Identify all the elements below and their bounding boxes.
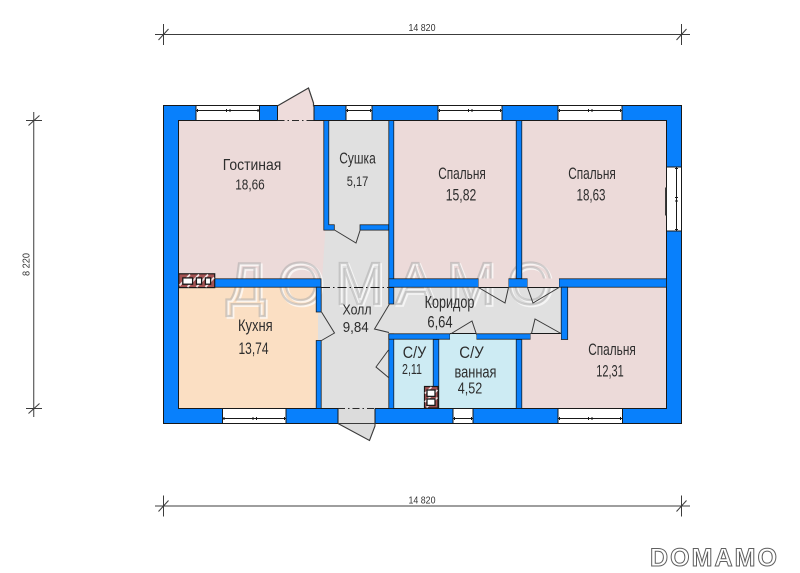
- svg-text:18,63: 18,63: [577, 187, 606, 205]
- svg-text:15,82: 15,82: [446, 187, 477, 205]
- svg-text:С/У: С/У: [403, 344, 427, 362]
- svg-text:4,52: 4,52: [458, 381, 482, 398]
- svg-text:Спальня: Спальня: [568, 164, 616, 183]
- svg-text:5,17: 5,17: [347, 173, 369, 189]
- svg-text:Спальня: Спальня: [588, 340, 636, 359]
- svg-text:Холл: Холл: [343, 302, 372, 319]
- svg-text:Сушка: Сушка: [339, 151, 376, 168]
- svg-text:13,74: 13,74: [239, 340, 269, 358]
- svg-text:Коридор: Коридор: [425, 292, 475, 312]
- svg-text:18,66: 18,66: [235, 178, 265, 194]
- svg-text:12,31: 12,31: [596, 362, 624, 380]
- svg-text:Гостиная: Гостиная: [223, 157, 282, 174]
- svg-text:9,84: 9,84: [343, 319, 369, 336]
- svg-text:ванная: ванная: [455, 363, 497, 381]
- svg-text:DOMAMO: DOMAMO: [650, 544, 782, 572]
- svg-text:Спальня: Спальня: [438, 164, 486, 183]
- svg-text:Кухня: Кухня: [238, 316, 273, 335]
- svg-text:14 820: 14 820: [409, 22, 436, 34]
- svg-text:2,11: 2,11: [402, 362, 422, 378]
- svg-text:14 820: 14 820: [409, 495, 436, 507]
- svg-text:6,64: 6,64: [427, 314, 452, 332]
- svg-text:С/У: С/У: [459, 344, 484, 362]
- svg-text:8 220: 8 220: [21, 253, 33, 276]
